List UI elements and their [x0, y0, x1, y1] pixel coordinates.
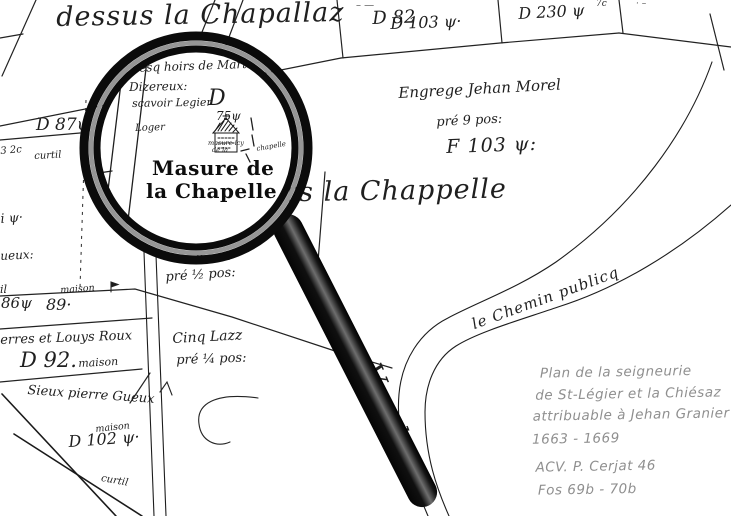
lens-parcel-d: D	[208, 88, 226, 110]
parcel-label-d102: D 102 ψ·	[68, 429, 140, 450]
magnifier-lens-view: Lesq hoirs de Martin Dizereux: scavoir L…	[98, 50, 294, 246]
parcel-label-86: 86ψ	[1, 296, 32, 311]
note-date-range: 1663 - 1669	[532, 432, 620, 447]
lens-text-dizereux: Dizereux:	[129, 80, 187, 93]
note-folio-ref: Fos 69b - 70b	[538, 483, 637, 498]
label-maison-b: maison	[78, 356, 118, 369]
parcel-label-d87: D 87ψ	[36, 117, 90, 134]
label-pre-demi-pose: pré ½ pos:	[165, 266, 236, 284]
note-line: Plan de la seigneurie	[540, 365, 692, 381]
parcel-label-d230-sup: 7c	[596, 0, 607, 9]
lens-tiny-de-la: de la	[212, 147, 228, 154]
lens-text-loger: Loger	[135, 123, 165, 134]
edge-fragment-psi: i ψ·	[0, 211, 23, 226]
label-cinq-lazz: Cinq Lazz	[172, 328, 243, 346]
note-archive-ref: ACV. P. Cerjat 46	[535, 460, 656, 476]
label-maison-a: maison	[60, 284, 95, 296]
owner-label-gueux: Sieux pierre Gueux	[27, 384, 155, 406]
parcel-label-d103: D 103 ψ·	[390, 14, 462, 32]
fragment-gueux: Gueux	[194, 251, 230, 265]
lens-caption-line-1: Masure de	[152, 158, 274, 178]
historical-map-scan: dessus la Chapallaz – — D 82 D 103 ψ· D …	[0, 0, 731, 516]
parcel-label-f103: F 103 ψ:	[446, 135, 537, 157]
label-pre-quart-pose: pré ¼ pos:	[176, 352, 247, 367]
parcel-label-89: 89·	[46, 297, 71, 313]
edge-fragment-32: 3 2c	[0, 145, 22, 157]
road-label-chemin-publicq: le Chemin publicq	[470, 265, 621, 332]
parcel-label-d92: D 92.	[20, 350, 77, 371]
pencil-archive-note: Plan de la seigneurie de St-Légier et la…	[532, 358, 731, 511]
owner-label-roux: erres et Louys Roux	[0, 329, 132, 347]
lens-caption-line-2: la Chapelle	[146, 181, 277, 201]
lens-text-scavoir-legier: scavoir Legier	[132, 97, 212, 109]
parcel-label-d230: D 230 ψ	[518, 3, 585, 22]
note-line: attribuable à Jehan Granier	[533, 407, 730, 424]
map-title: dessus la Chapallaz	[56, 0, 345, 31]
note-line: de St-Légier et la Chiésaz	[535, 386, 721, 403]
label-curtil-bottom: curtil	[100, 474, 129, 489]
edge-fragment-ueux: ueux:	[0, 248, 34, 262]
label-pre-9-pos: pré 9 pos:	[436, 113, 503, 129]
ink-dashes: · –	[636, 0, 646, 9]
label-curtil-top: curtil	[34, 151, 62, 162]
owner-label-jehan-morel: Engrege Jehan Morel	[398, 77, 561, 100]
